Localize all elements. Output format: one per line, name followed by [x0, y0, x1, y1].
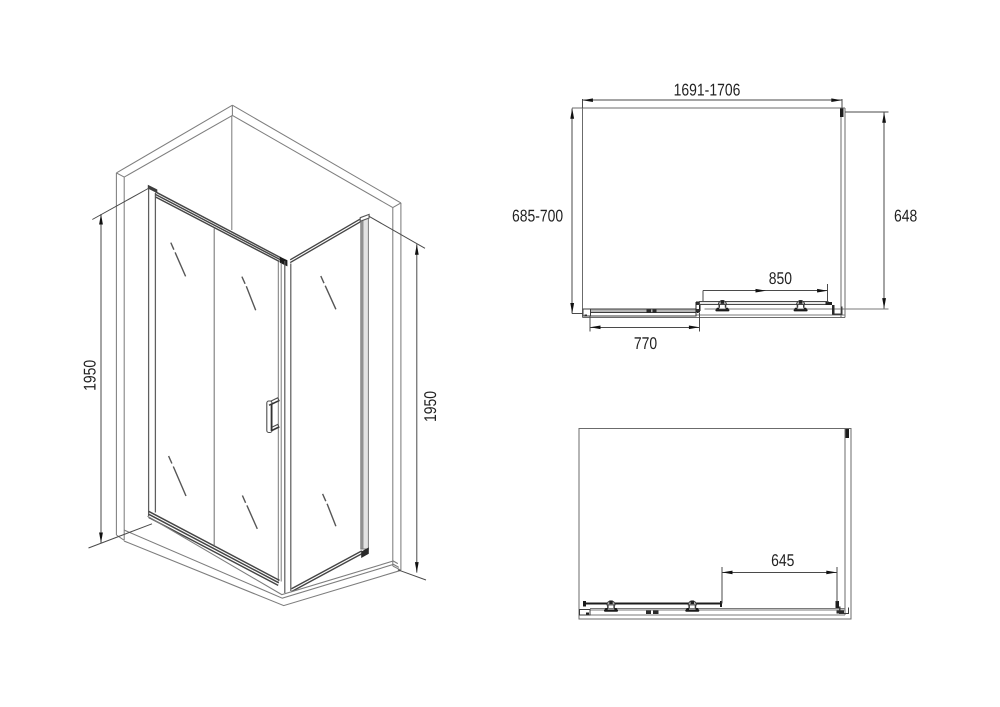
svg-text:850: 850: [769, 269, 792, 288]
svg-text:685-700: 685-700: [512, 206, 563, 225]
svg-text:1950: 1950: [421, 391, 440, 422]
svg-text:1691-1706: 1691-1706: [674, 81, 741, 100]
svg-text:648: 648: [894, 206, 917, 225]
svg-text:1950: 1950: [80, 360, 99, 391]
svg-text:645: 645: [771, 551, 794, 570]
svg-text:770: 770: [634, 334, 657, 353]
